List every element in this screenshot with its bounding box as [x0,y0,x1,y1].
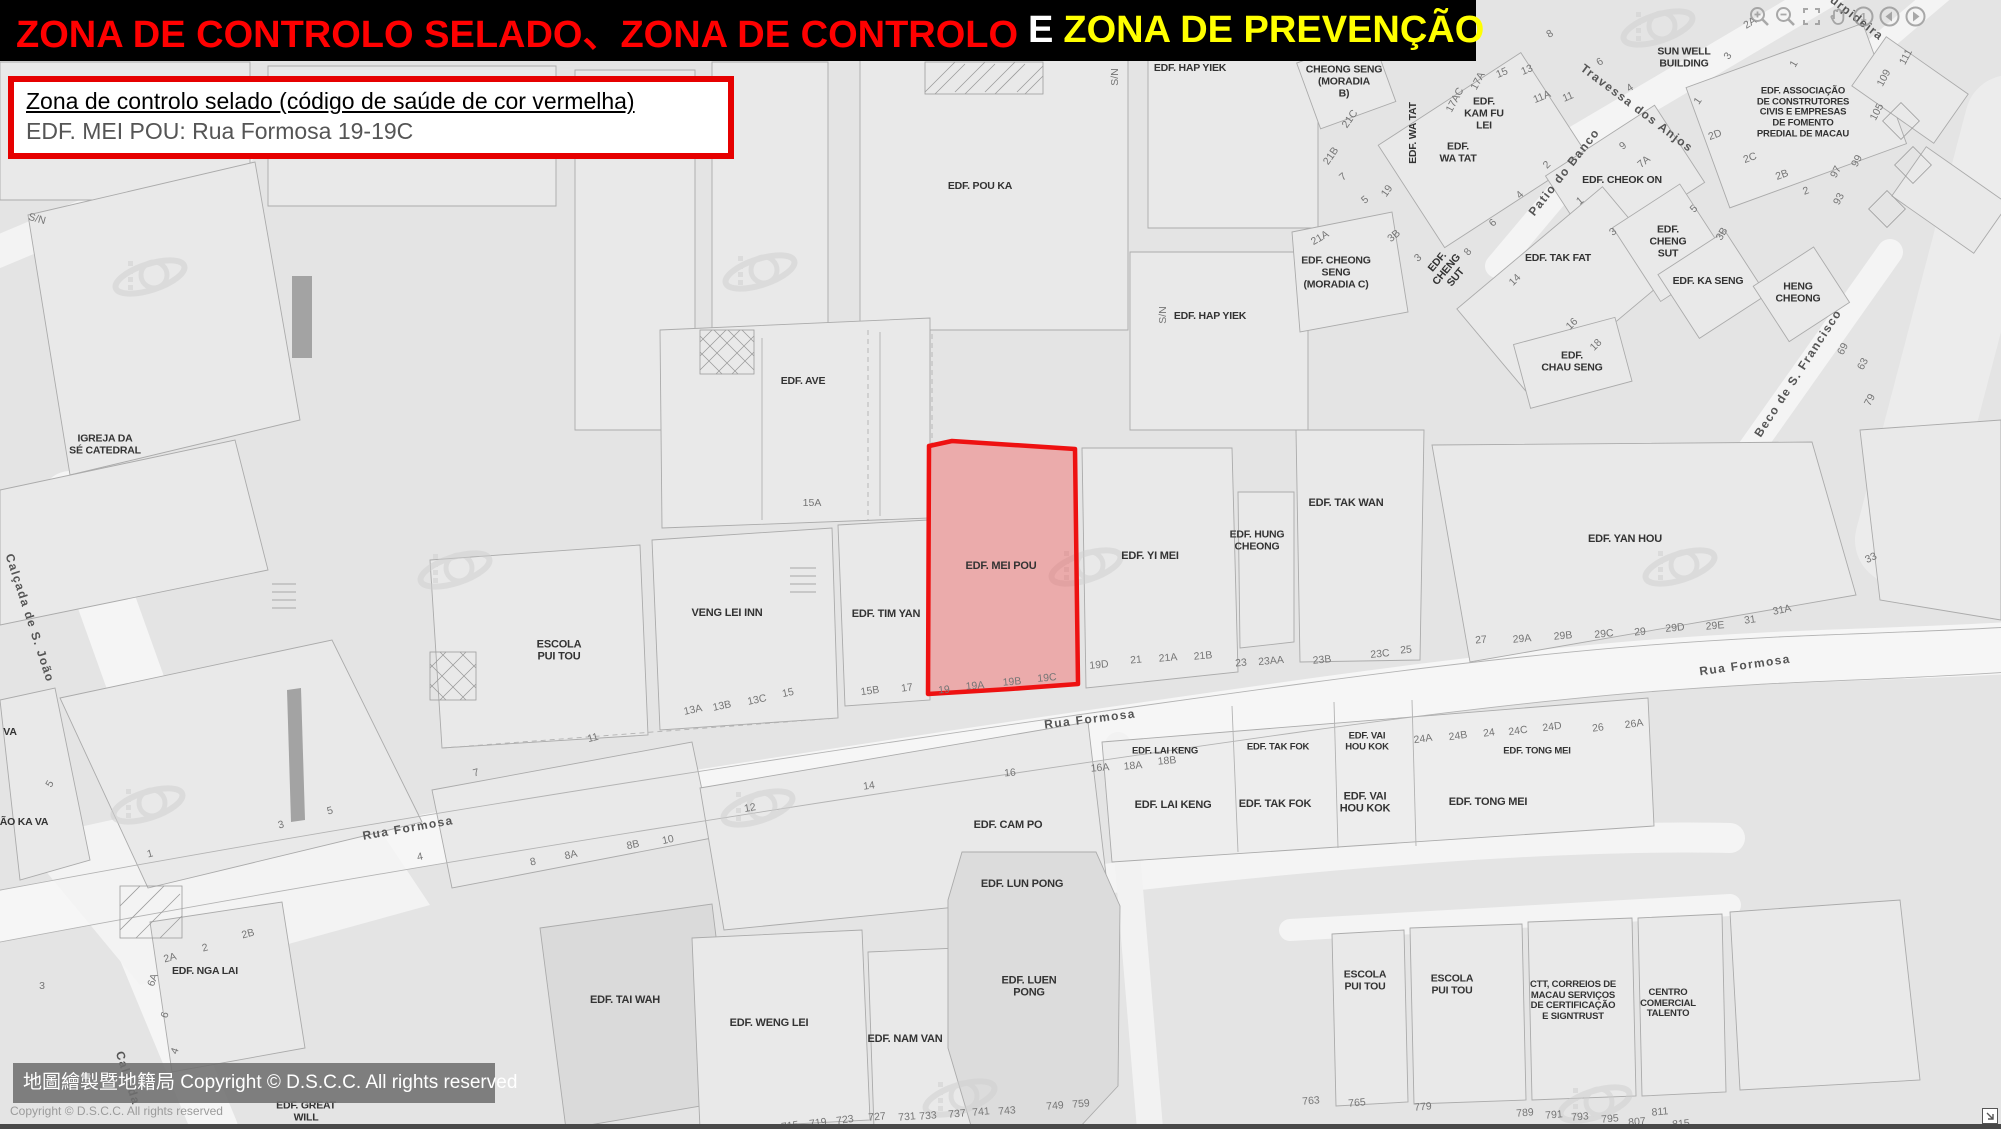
map-viewer: EDF. HAP YIEKEDF. POU KACHEONG SENG (MOR… [0,0,2001,1129]
full-extent-icon[interactable] [1800,5,1823,28]
bottom-bar [0,1124,2001,1129]
previous-view-icon[interactable] [1878,5,1901,28]
title-yellow: ZONA DE PREVENÇÃO [1063,9,1484,52]
svg-text:1: 1 [1860,12,1866,24]
map-toolbar: 1 [1748,5,1927,28]
next-view-icon[interactable] [1904,5,1927,28]
zoom-in-icon[interactable] [1748,5,1771,28]
copyright-small: Copyright © D.S.C.C. All rights reserved [10,1104,223,1118]
sealed-zone-polygon [928,441,1078,694]
legend-box: Zona de controlo selado (código de saúde… [8,76,734,159]
title-red: ZONA DE CONTROLO SELADO、ZONA DE CONTROLO [16,3,1018,58]
initial-view-icon[interactable]: 1 [1852,5,1875,28]
corner-arrow-glyph [1985,1111,1995,1121]
legend-heading: Zona de controlo selado (código de saúde… [26,88,716,115]
pan-hand-icon[interactable] [1826,5,1849,28]
corner-expand-icon[interactable] [1982,1108,1998,1124]
zoom-out-icon[interactable] [1774,5,1797,28]
map-canvas[interactable] [0,0,2001,1129]
copyright-bar: 地圖繪製暨地籍局 Copyright © D.S.C.C. All rights… [13,1063,495,1103]
title-separator: E [1018,9,1063,52]
title-banner: ZONA DE CONTROLO SELADO、ZONA DE CONTROLO… [0,0,1476,61]
legend-address: EDF. MEI POU: Rua Formosa 19-19C [26,118,716,145]
